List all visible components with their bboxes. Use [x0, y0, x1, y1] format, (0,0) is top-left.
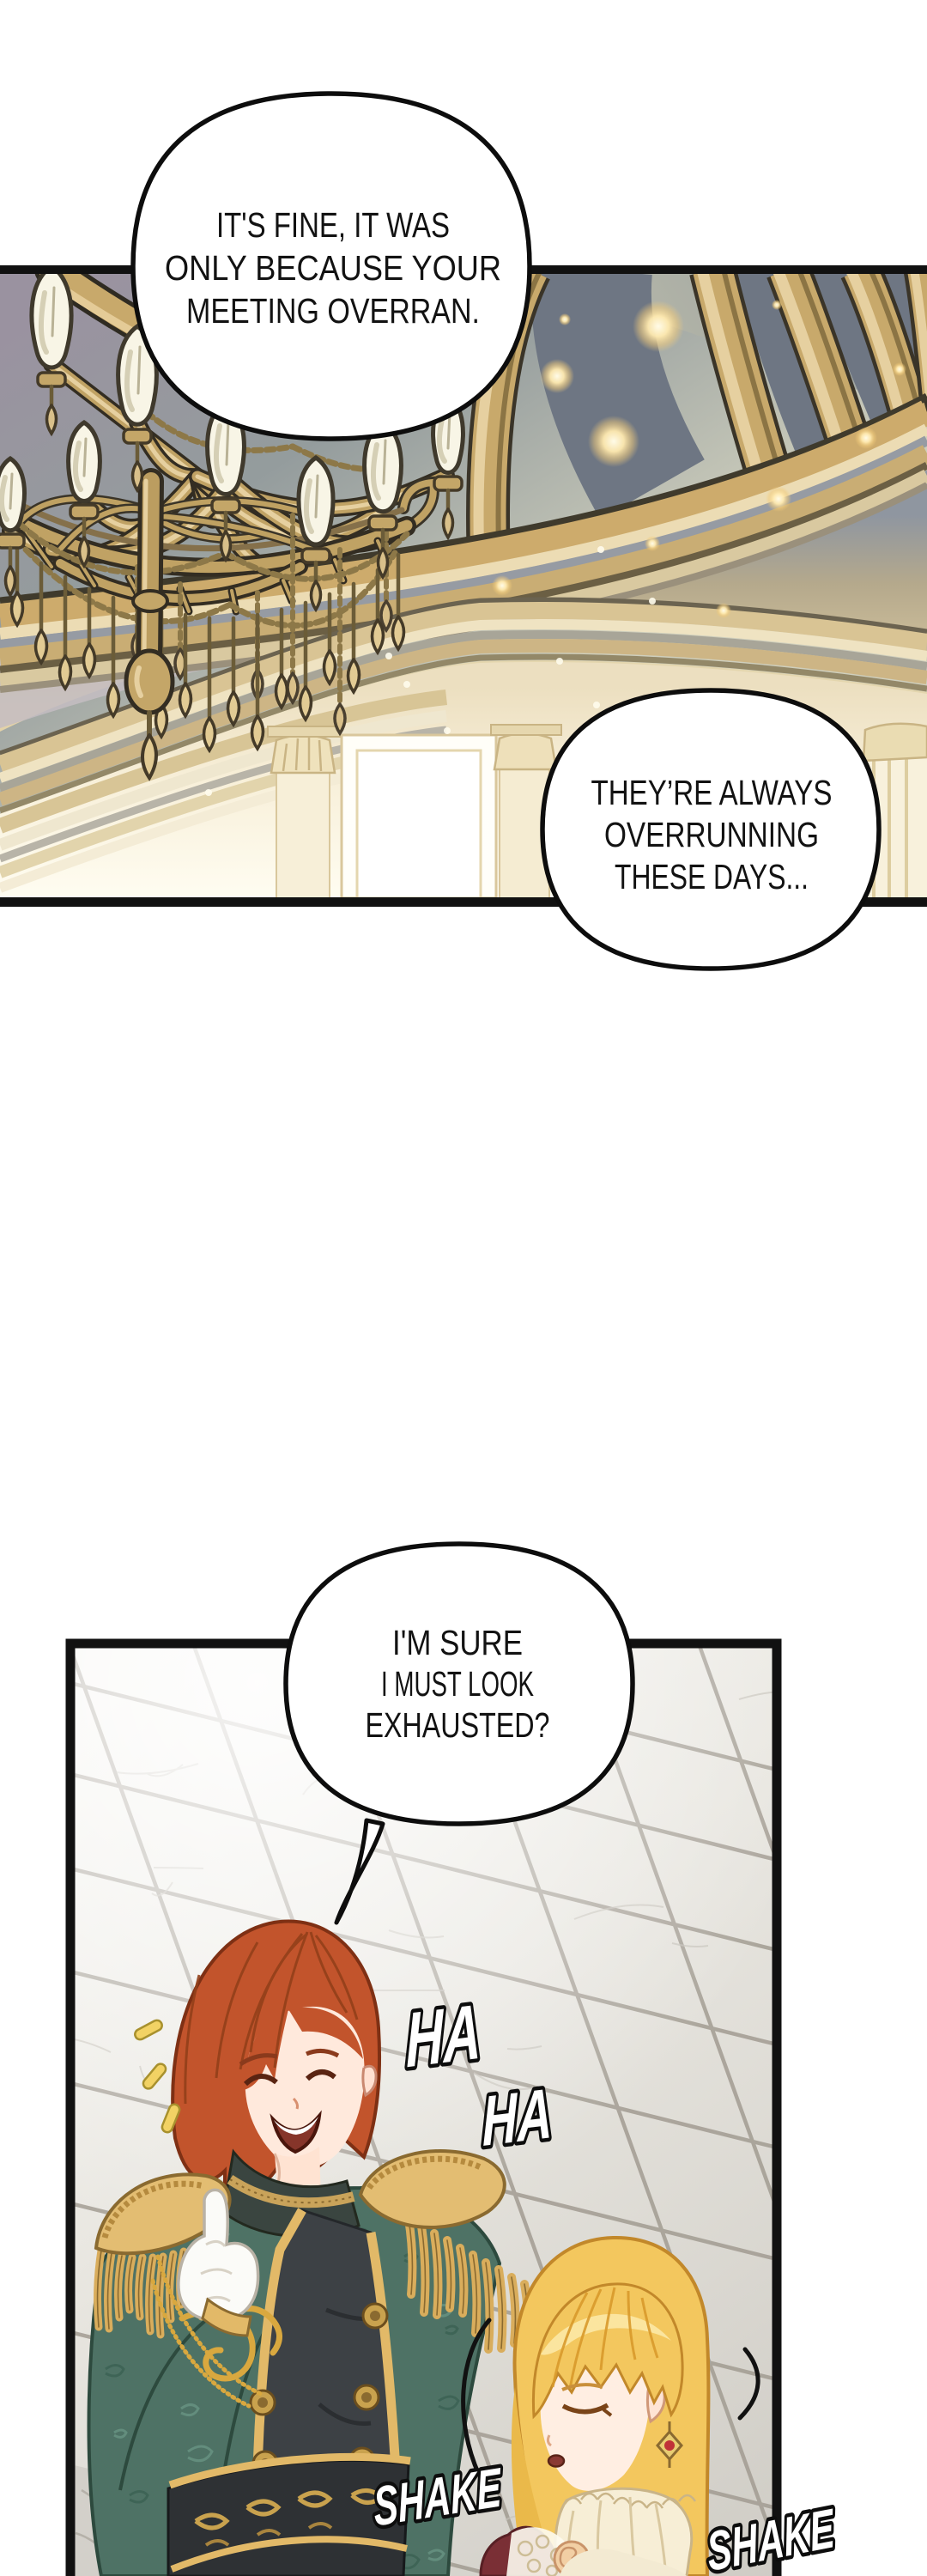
- svg-text:IT'S FINE, IT WAS: IT'S FINE, IT WAS: [216, 205, 450, 245]
- svg-text:HA: HA: [405, 1988, 482, 2084]
- svg-text:THEY’RE ALWAYS: THEY’RE ALWAYS: [591, 773, 833, 812]
- svg-text:ONLY BECAUSE YOUR: ONLY BECAUSE YOUR: [165, 248, 501, 288]
- svg-text:HA: HA: [482, 2075, 553, 2161]
- svg-text:THESE DAYS...: THESE DAYS...: [615, 857, 809, 896]
- svg-text:I MUST LOOK: I MUST LOOK: [381, 1664, 534, 1704]
- svg-text:OVERRUNNING: OVERRUNNING: [604, 815, 819, 854]
- svg-text:MEETING OVERRAN.: MEETING OVERRAN.: [186, 291, 480, 331]
- svg-text:EXHAUSTED?: EXHAUSTED?: [366, 1705, 550, 1745]
- svg-text:I'M SURE: I'M SURE: [392, 1623, 523, 1662]
